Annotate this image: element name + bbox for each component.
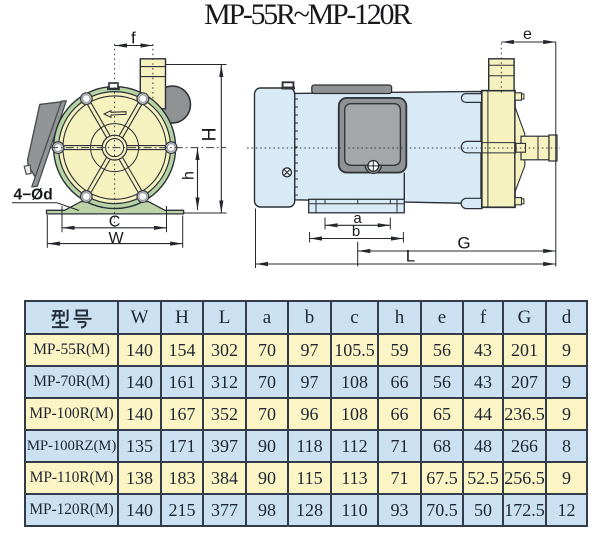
svg-text:L: L <box>406 247 415 266</box>
svg-text:f: f <box>131 29 136 48</box>
svg-text:4−Ød: 4−Ød <box>14 187 53 204</box>
svg-text:W: W <box>108 230 124 247</box>
svg-text:b: b <box>352 223 360 240</box>
svg-text:h: h <box>181 171 198 180</box>
svg-text:e: e <box>523 26 532 43</box>
svg-text:H: H <box>199 127 221 141</box>
svg-text:C: C <box>109 214 121 231</box>
svg-text:G: G <box>457 234 470 253</box>
